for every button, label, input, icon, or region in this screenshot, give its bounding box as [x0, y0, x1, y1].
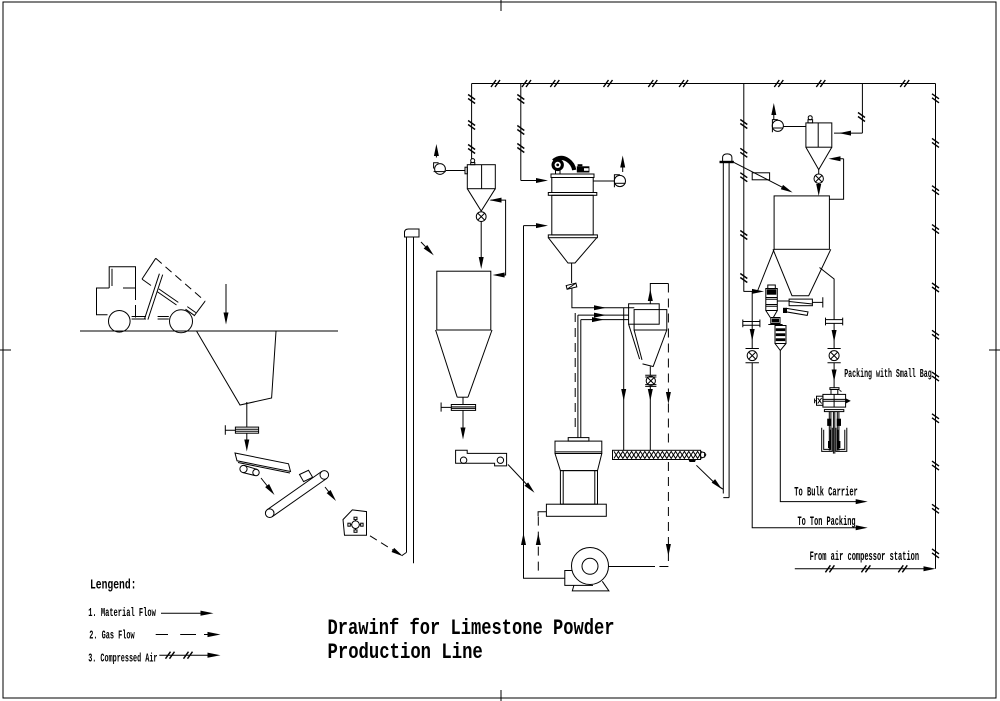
svg-text:Production Line: Production Line — [328, 640, 483, 665]
svg-text:To Ton Packing: To Ton Packing — [798, 515, 856, 529]
svg-text:Packing with Small Bag: Packing with Small Bag — [844, 367, 932, 381]
svg-text:To Bulk Carrier: To Bulk Carrier — [794, 486, 858, 500]
svg-text:Lengend:: Lengend: — [90, 579, 137, 594]
svg-text:2. Gas Flow: 2. Gas Flow — [89, 629, 135, 643]
svg-text:3. Compressed Air: 3. Compressed Air — [88, 651, 157, 665]
svg-text:1. Material Flow: 1. Material Flow — [88, 606, 156, 620]
svg-text:Drawinf for Limestone Powder: Drawinf for Limestone Powder — [328, 616, 615, 641]
svg-text:From air compessor station: From air compessor station — [810, 550, 920, 564]
